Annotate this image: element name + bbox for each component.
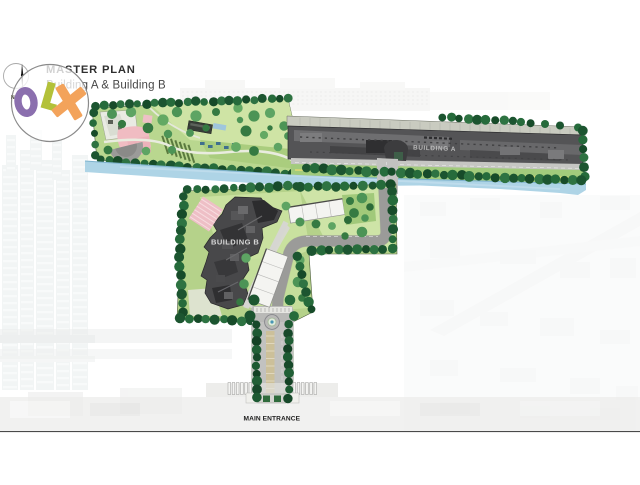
svg-text:MAIN ENTRANCE: MAIN ENTRANCE [244, 416, 301, 423]
svg-text:BUILDING B: BUILDING B [211, 238, 259, 247]
